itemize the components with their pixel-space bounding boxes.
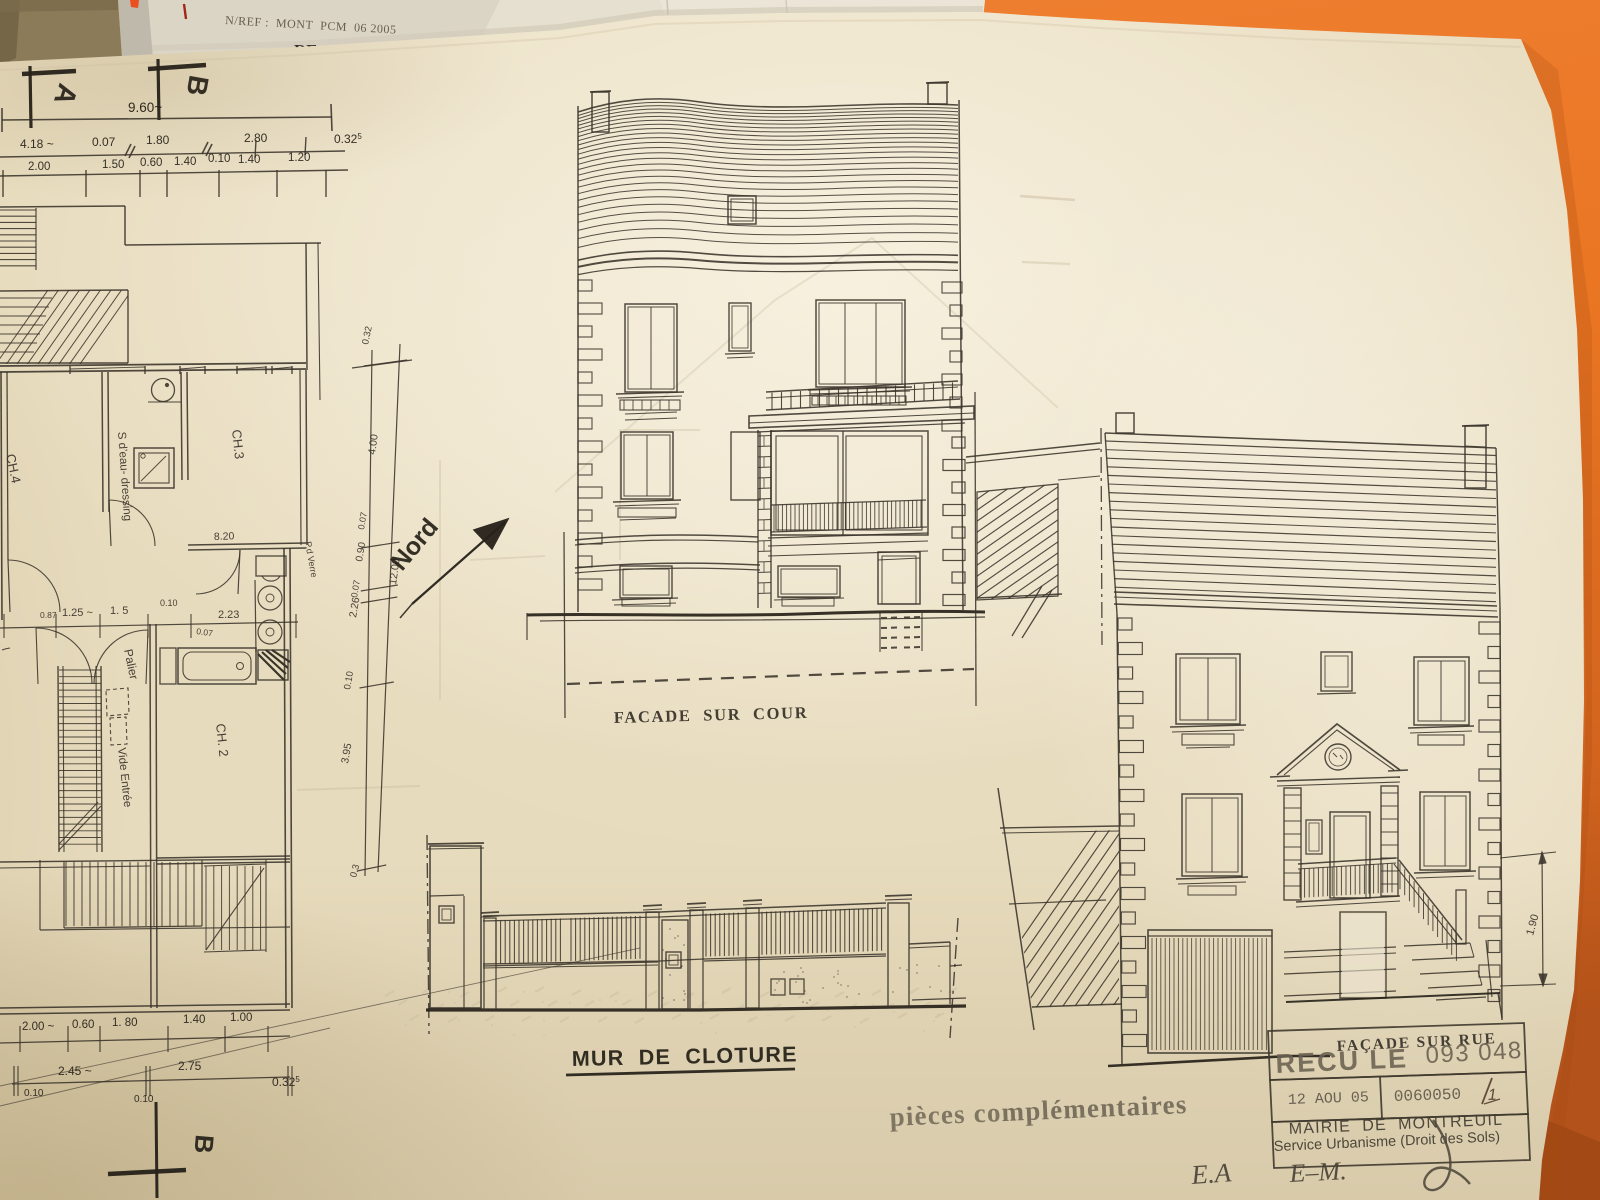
svg-text:0.87: 0.87 [40, 610, 57, 620]
svg-text:MUR DE CLOTURE: MUR DE CLOTURE [572, 1042, 798, 1071]
svg-text:093 048: 093 048 [1425, 1037, 1524, 1069]
svg-text:1.25 ~: 1.25 ~ [62, 607, 93, 619]
svg-text:1. 5: 1. 5 [110, 605, 128, 617]
svg-text:2.23: 2.23 [218, 609, 239, 621]
svg-text:0.10: 0.10 [160, 598, 178, 608]
svg-text:1.20: 1.20 [288, 152, 310, 164]
svg-text:4.18 ~: 4.18 ~ [20, 137, 54, 151]
svg-text:1.00: 1.00 [230, 1012, 252, 1024]
svg-text:1.40: 1.40 [174, 156, 196, 168]
svg-text:12 AOU 05: 12 AOU 05 [1288, 1089, 1370, 1109]
svg-text:1.50: 1.50 [102, 159, 124, 171]
svg-text:2.00: 2.00 [28, 161, 50, 173]
svg-text:E.A: E.A [1189, 1157, 1232, 1190]
svg-text:CH.3: CH.3 [229, 429, 247, 460]
svg-text:0.10: 0.10 [208, 153, 230, 165]
svg-text:1.40: 1.40 [183, 1014, 205, 1026]
svg-text:2.75: 2.75 [178, 1059, 202, 1073]
svg-text:0.60: 0.60 [72, 1019, 94, 1031]
svg-text:0.07: 0.07 [92, 135, 116, 149]
svg-text:1.80: 1.80 [146, 133, 170, 147]
svg-text:9.60~: 9.60~ [128, 100, 162, 115]
svg-text:1. 80: 1. 80 [112, 1017, 138, 1029]
svg-text:RECU LE: RECU LE [1275, 1043, 1409, 1079]
svg-text:0.10: 0.10 [134, 1094, 154, 1105]
svg-text:E–M.: E–M. [1288, 1156, 1347, 1188]
svg-text:B: B [188, 1133, 220, 1154]
svg-text:1.40: 1.40 [238, 154, 260, 166]
svg-text:2.45 ~: 2.45 ~ [58, 1064, 92, 1078]
svg-text:0060050: 0060050 [1394, 1086, 1462, 1106]
svg-text:2.00 ~: 2.00 ~ [22, 1021, 55, 1033]
svg-text:8.20: 8.20 [214, 530, 235, 543]
svg-text:0.10: 0.10 [24, 1088, 44, 1099]
svg-text:0.60: 0.60 [140, 157, 162, 169]
